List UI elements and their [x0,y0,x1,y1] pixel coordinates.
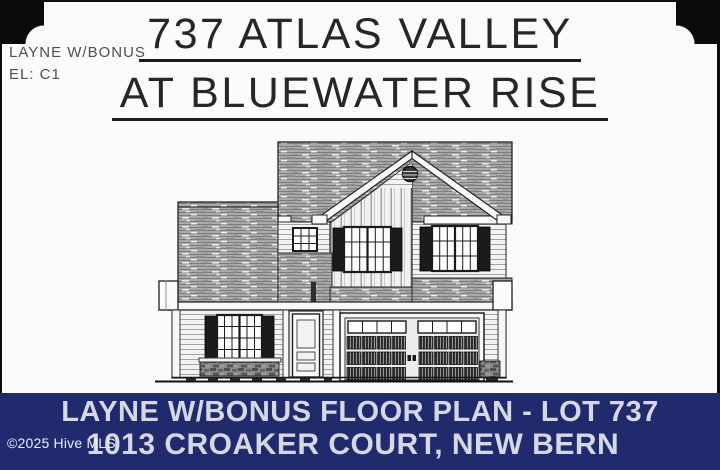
mls-listing-photo: LAYNE W/BONUS EL: C1 737 ATLAS VALLEY AT… [0,0,720,470]
title-line-2: AT BLUEWATER RISE [0,71,720,121]
mls-watermark: ©2025 Hive MLS [7,435,116,451]
right-window [420,226,490,271]
brick-skirt [200,362,279,376]
gable-window [333,227,402,272]
front-door [289,311,323,377]
gutter-cap-right [493,281,512,310]
banner-floor-plan-lot: LAYNE W/BONUS FLOOR PLAN - LOT 737 [0,397,720,428]
photo-border-top [0,0,720,2]
brick-patch-right [480,361,500,377]
garage-door-handle [408,355,412,361]
title-line-1: 737 ATLAS VALLEY [0,12,720,62]
garage-door [340,313,484,381]
gutter-cap-left [159,281,178,310]
small-square-window [293,228,317,251]
first-floor-window [205,315,274,360]
page-title: 737 ATLAS VALLEY AT BLUEWATER RISE [0,12,720,130]
gable-vent-icon [403,167,418,182]
listing-banner: LAYNE W/BONUS FLOOR PLAN - LOT 737 1013 … [0,393,720,470]
left-roof [178,202,278,302]
porch-fascia [161,302,512,310]
